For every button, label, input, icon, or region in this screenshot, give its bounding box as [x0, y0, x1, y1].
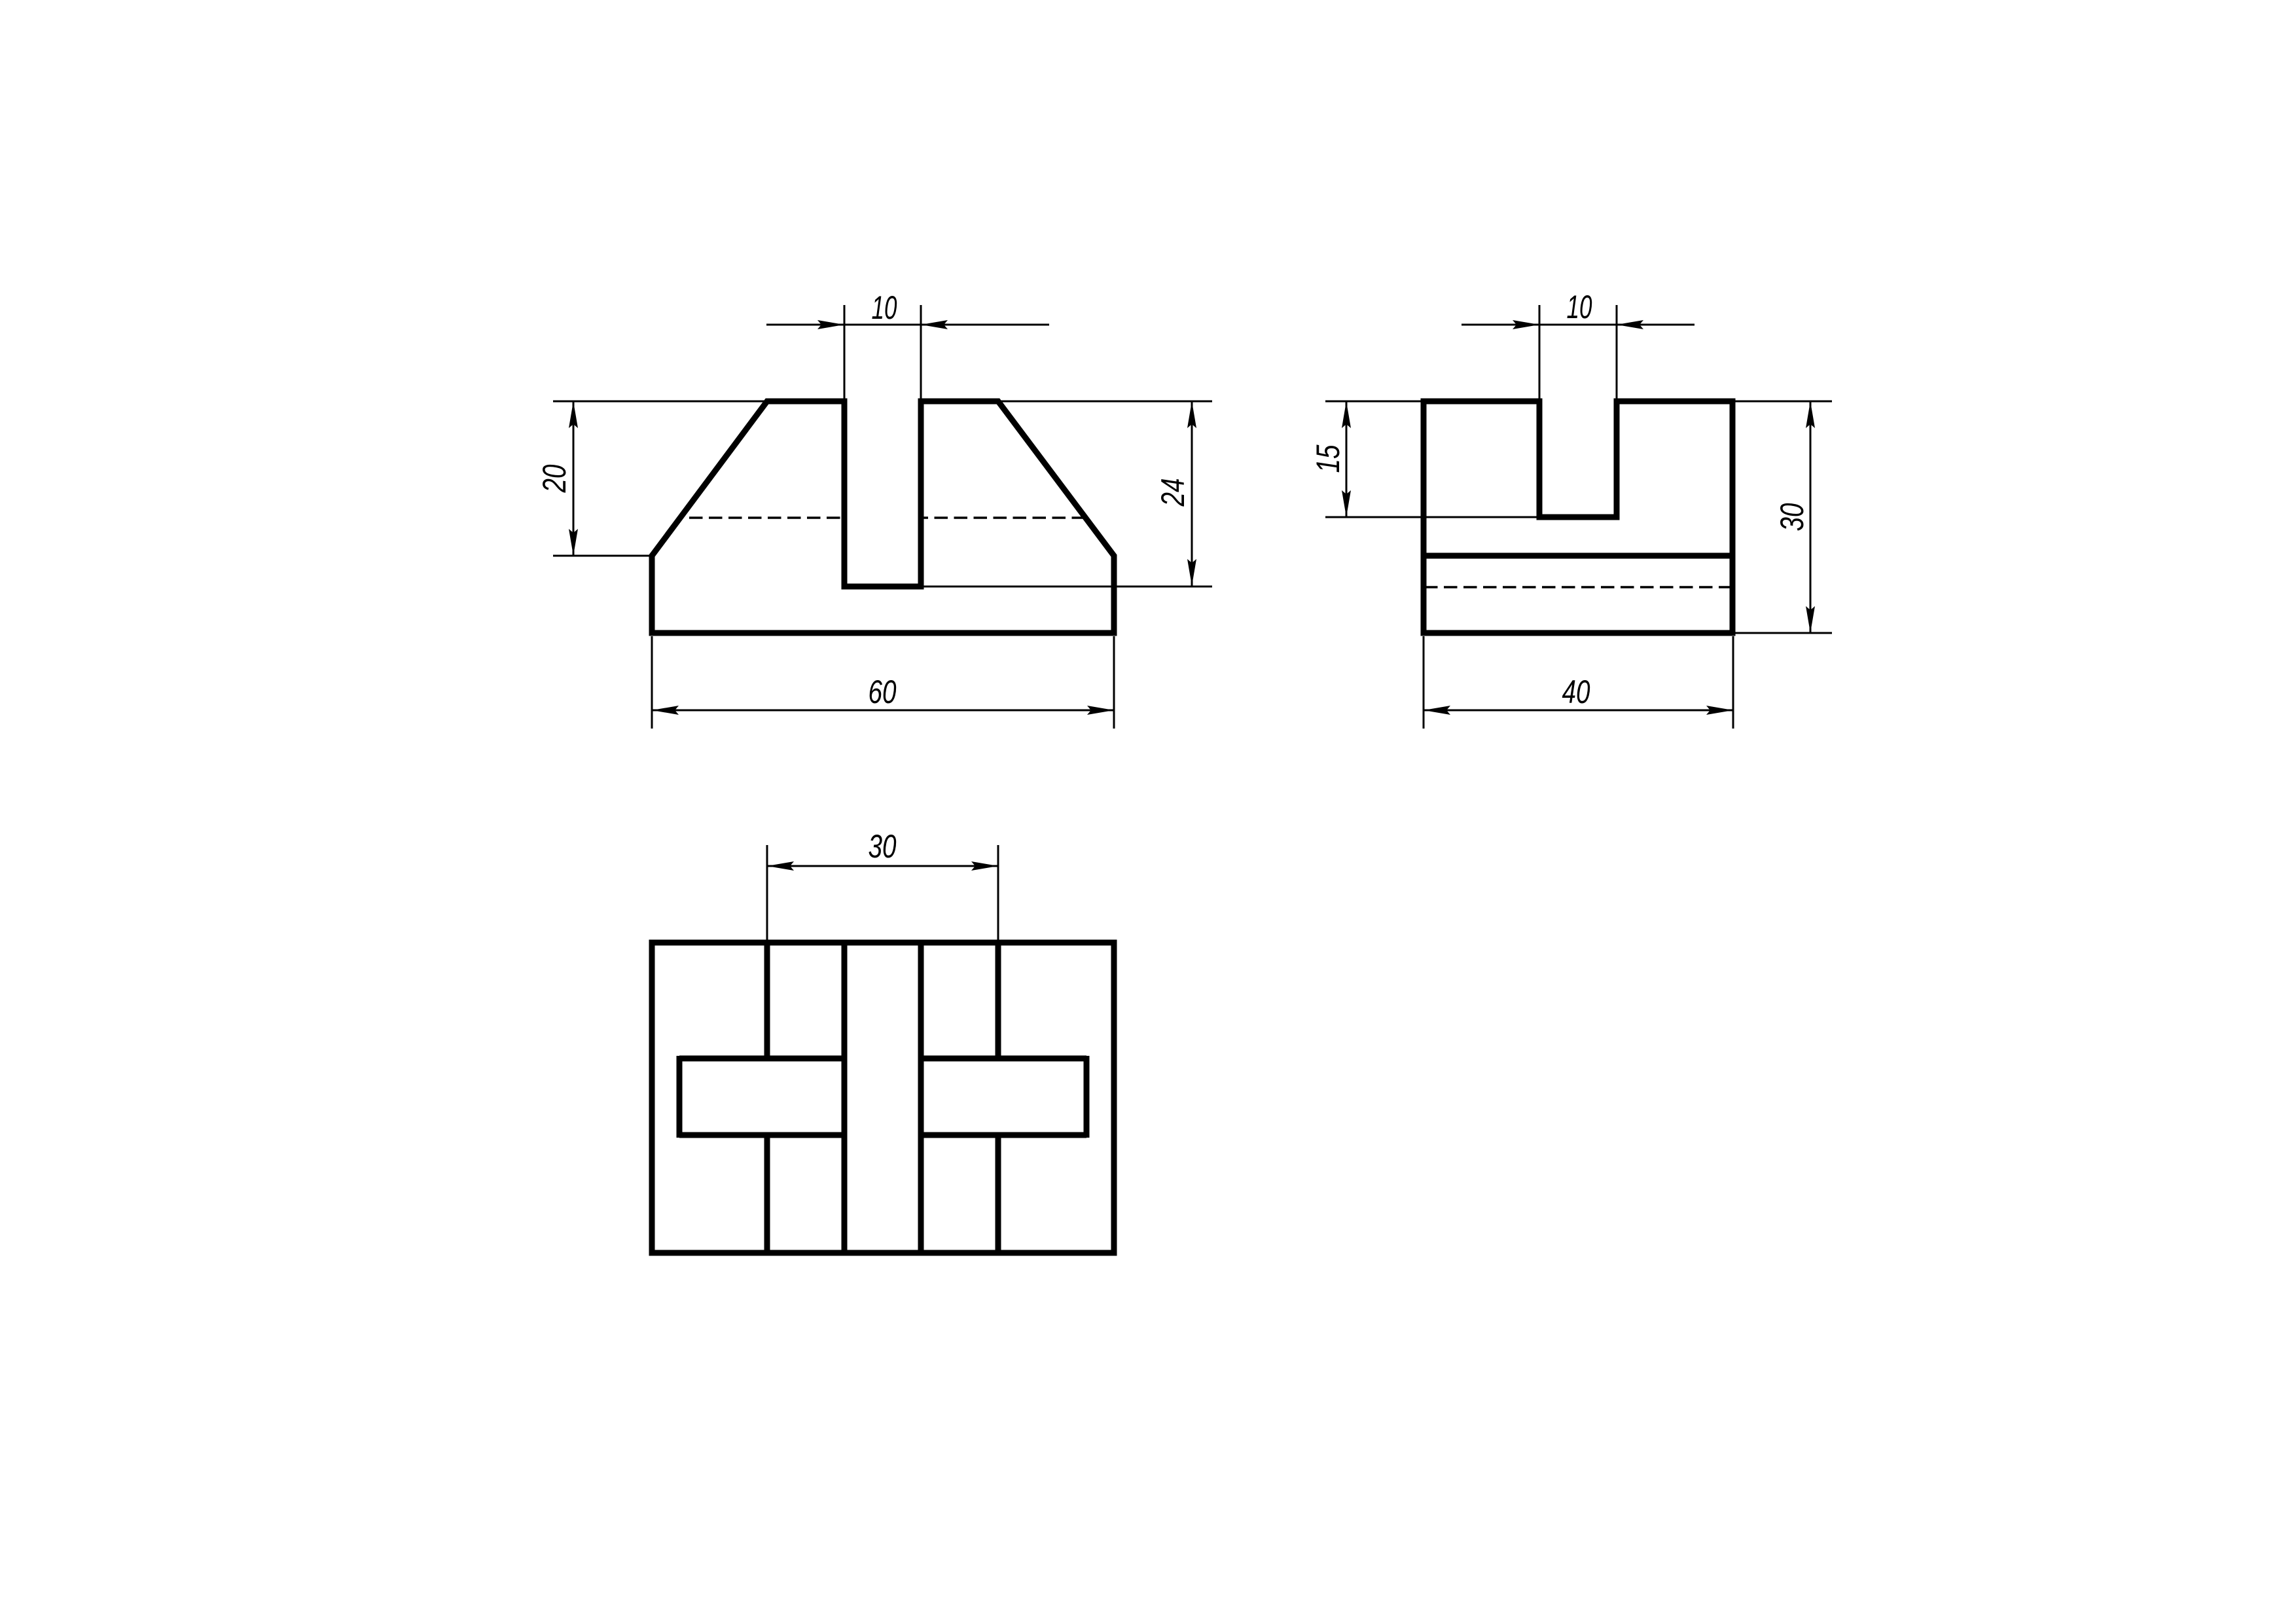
- svg-text:20: 20: [536, 464, 573, 493]
- svg-text:24: 24: [1155, 478, 1191, 507]
- svg-text:15: 15: [1310, 444, 1346, 473]
- svg-text:40: 40: [1562, 674, 1590, 710]
- svg-text:10: 10: [1567, 289, 1592, 325]
- svg-text:10: 10: [872, 289, 897, 326]
- svg-text:60: 60: [869, 674, 897, 710]
- svg-text:30: 30: [869, 828, 897, 865]
- svg-text:30: 30: [1774, 503, 1810, 531]
